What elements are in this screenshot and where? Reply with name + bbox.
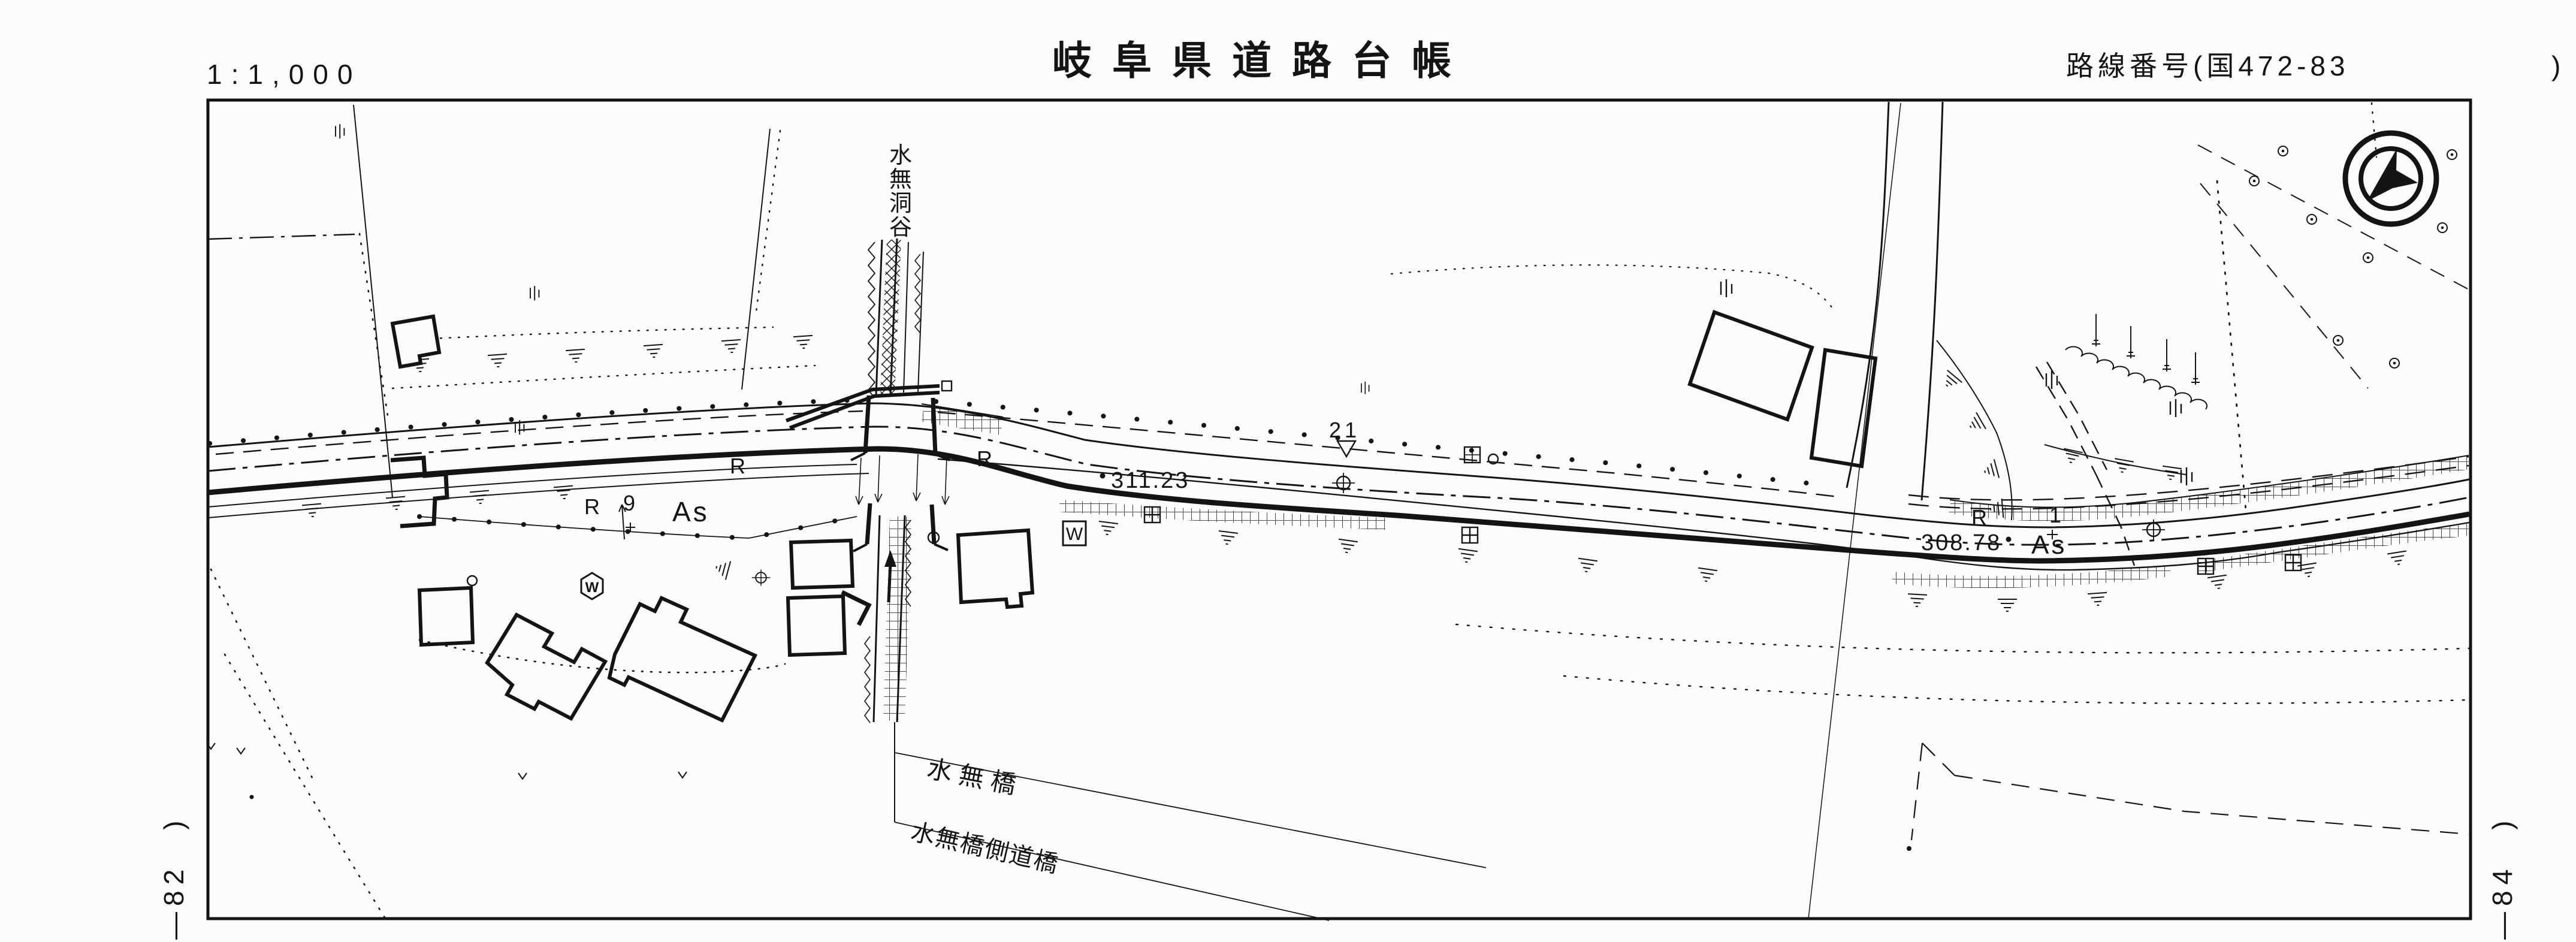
svg-text:谷: 谷 [889,215,912,240]
wooded-area [2198,103,2468,388]
gate-wall [842,592,869,625]
building-outline [958,530,1032,607]
svg-text:洞: 洞 [889,191,912,216]
well-label: W [585,579,599,596]
well-marker: W [581,573,603,599]
building-outline [419,588,473,645]
grass-symbol [1721,279,1732,297]
north-arrow-icon [2345,133,2436,224]
grass-symbol [1361,382,1369,394]
bridge-labels: 水無橋 水無橋側道橋 [895,722,1486,920]
benchmark-icon [1332,473,1355,493]
stream-name-label: 水 無 洞 谷 [889,143,912,240]
elevation-point: 311.23 [1100,468,1190,493]
grass-symbol [530,286,539,300]
sheet-ref-left: —82 ) [158,815,189,940]
building-outline [791,541,853,588]
header: 1:1,000 岐阜県道路台帳 路線番号(国472-83 ) [207,38,2560,90]
building-outline [1690,312,1812,419]
slope-hatch-south [302,486,2408,611]
survey-line [1808,103,1901,919]
elevation-label: 308.78 [1921,530,2001,555]
side-bridge-name-label: 水無橋側道橋 [908,819,1061,878]
grass-symbol [2170,399,2181,417]
flow-arrow [889,562,890,602]
paths-bottom-left [207,532,939,920]
grass-symbol [336,124,344,138]
building-outline [609,598,755,720]
road-ledger-sheet: 1:1,000 岐阜県道路台帳 路線番号(国472-83 ) —82 ) —84… [0,0,2576,942]
route-number-label: 路線番号(国472-83 [2066,50,2349,81]
km-post-marker: 21 [1329,418,1360,457]
parcel-boundaries-left [208,105,815,497]
sheet-ref-right: —84 ) [2487,815,2518,940]
svg-text:水: 水 [889,143,912,168]
building-outline [392,316,439,367]
building-outline [487,615,605,718]
r-mark: R [730,454,745,478]
road-ledger-map: 1:1,000 岐阜県道路台帳 路線番号(国472-83 ) —82 ) —84… [0,0,2576,942]
page-title: 岐阜県道路台帳 [1052,38,1472,83]
r-mark: R [977,446,992,471]
slope-hatch-north-strip [410,336,813,372]
surface-label: As [2031,530,2067,560]
bridge-name-label: 水無橋 [925,754,1025,801]
scale-label: 1:1,000 [207,59,361,90]
km-post-label: 21 [1329,418,1360,442]
r-mark: R [1971,505,1987,530]
elevation-point: 308.78 [1921,530,2012,555]
route-number-paren: ) [2551,50,2560,81]
building-outline [788,596,845,655]
grass-symbol [2181,467,2192,485]
benchmark-icon [752,569,770,585]
surface-label: As [672,496,709,527]
elevation-label: 311.23 [1111,468,1189,493]
water-valve-label: W [1066,524,1083,544]
svg-text:無: 無 [889,167,912,192]
water-valve-marker: W [1063,521,1086,545]
r-mark: R [584,494,600,519]
station-number: 1 [2049,503,2061,527]
